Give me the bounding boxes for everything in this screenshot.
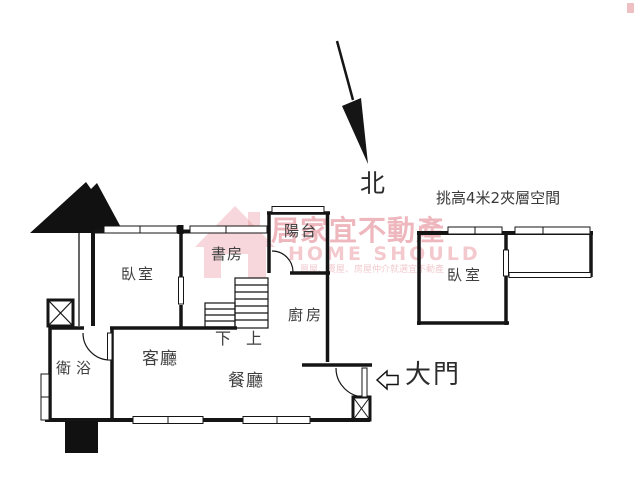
label-north: 北 [360,171,385,196]
bathroom-door [83,333,112,360]
stairs [205,278,268,328]
mezzanine-walls [417,233,593,325]
label-mezzanine-bedroom: 臥室 [447,268,483,283]
label-bathroom: 衛浴 [56,361,96,376]
mezzanine-door-leaf [504,250,509,276]
label-bedroom: 臥室 [121,267,155,282]
label-entrance: 大門 [405,362,461,388]
label-stairs-up: 上 [246,331,262,347]
floor-plan-page: 居家宜不動產 HOME SHOULD 買屋、賣屋、房屋仲介就選宜不動產 [0,0,637,496]
balcony-door [272,251,293,272]
label-mezzanine-note: 挑高4米2夾層空間 [436,191,560,206]
floor-plan-drawing [0,0,637,496]
label-living-room: 客廳 [142,351,178,368]
shaft-x-box-entry [353,397,370,420]
label-balcony: 陽台 [284,224,318,239]
north-arrow-icon [337,41,368,164]
label-study: 書房 [211,247,243,262]
tree-symbol [30,182,124,233]
label-kitchen: 廚房 [288,308,324,323]
black-column [65,421,98,453]
entrance-arrow-icon [377,371,398,389]
label-stairs-down: 下 [215,331,231,347]
bedroom-door-leaf [179,277,184,304]
shaft-x-box-top [48,300,73,326]
entry-door [336,368,367,397]
label-dining-room: 餐廳 [228,373,264,390]
